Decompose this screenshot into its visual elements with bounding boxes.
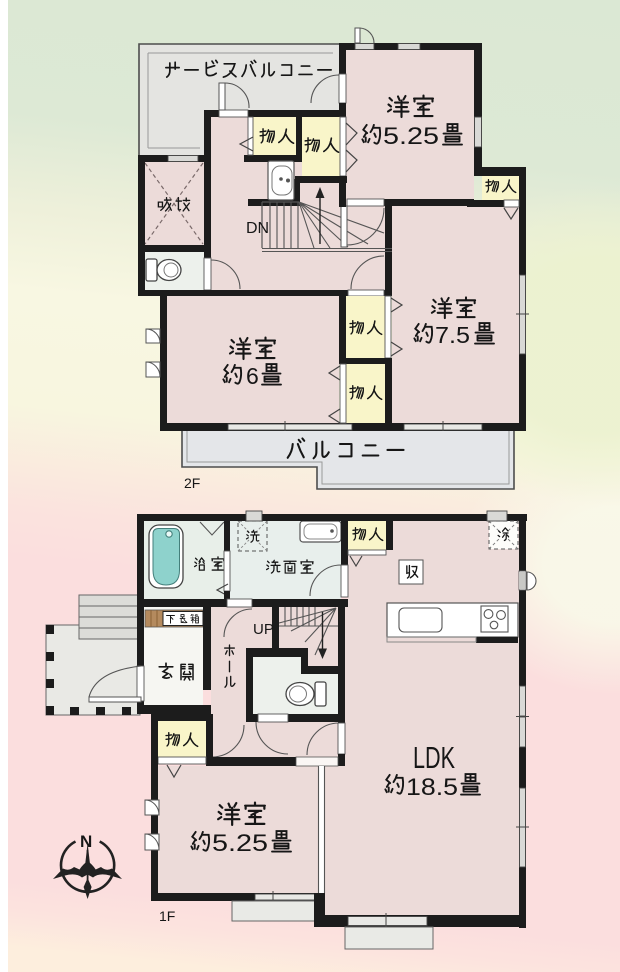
svg-text:N: N — [80, 832, 92, 851]
svg-text:DN: DN — [246, 220, 269, 237]
svg-text:1F: 1F — [159, 908, 175, 924]
svg-text:6: 6 — [246, 363, 259, 389]
svg-text:18.5: 18.5 — [406, 774, 458, 801]
svg-text:UP: UP — [253, 621, 274, 638]
svg-text:2F: 2F — [184, 475, 200, 491]
svg-text:7.5: 7.5 — [435, 322, 470, 348]
svg-text:LDK: LDK — [413, 740, 455, 775]
svg-text:5.25: 5.25 — [212, 830, 268, 857]
svg-text:5.25: 5.25 — [383, 123, 439, 150]
